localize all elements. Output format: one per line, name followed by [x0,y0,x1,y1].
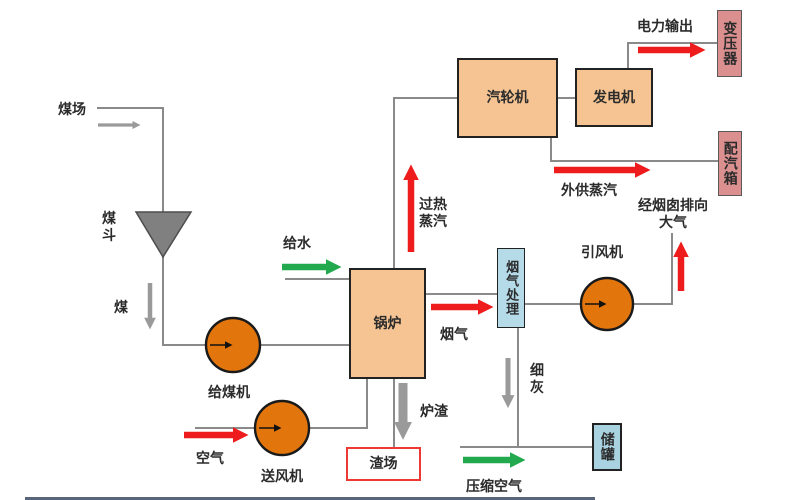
turbine-label: 汽轮机 [487,89,529,107]
to-atmosphere-label: 经烟囱排向 大气 [628,197,718,231]
connector-layer [0,0,800,500]
steam-dist-label: 配汽箱 [721,141,739,186]
flue-gas-label: 烟气 [440,326,468,343]
power-output-label: 电力输出 [637,18,693,35]
flue-gas-treatment-label: 烟气处理 [503,260,519,316]
superheated-steam-label: 过热 蒸汽 [419,196,447,230]
fd-fan-circle [255,401,309,455]
coal-yard-label: 煤场 [58,101,86,118]
fine-ash-label: 细 灰 [530,362,544,396]
transformer-label: 变压器 [721,21,739,66]
slag-yard-label: 渣场 [370,455,398,473]
pipe-turbine-to-steambox [551,138,718,161]
turbine-box: 汽轮机 [457,58,558,138]
coal-feeder-label: 给煤机 [208,384,250,401]
diagram-canvas: 锅炉 汽轮机 发电机 变压器 配汽箱 烟气处理 储罐 渣场 煤场 煤 斗 煤 给… [0,0,800,500]
external-steam-label: 外供蒸汽 [561,182,617,199]
flue-gas-treatment-box: 烟气处理 [497,248,525,328]
boiler-label: 锅炉 [374,315,402,333]
feed-water-label: 给水 [283,235,311,252]
fd-fan-label: 送风机 [261,468,303,485]
coal-feeder-circle [206,318,260,372]
id-fan-label: 引风机 [581,244,623,261]
id-fan-circle [581,278,633,330]
boiler-box: 锅炉 [349,268,426,379]
slag-label: 炉渣 [420,403,448,420]
air-label: 空气 [196,450,224,467]
pipe-steam-to-turbine [394,98,457,268]
generator-box: 发电机 [575,68,653,127]
slag-yard-box: 渣场 [346,447,421,481]
coal-hopper-funnel [136,212,191,257]
transformer-box: 变压器 [717,10,742,77]
storage-tank-box: 储罐 [592,423,622,471]
storage-tank-label: 储罐 [598,432,616,462]
coal-hopper-label: 煤 斗 [96,210,122,244]
compressed-air-label: 压缩空气 [466,478,522,495]
generator-label: 发电机 [593,89,635,107]
coal-flow-label: 煤 [114,299,128,316]
steam-dist-box: 配汽箱 [718,131,742,196]
